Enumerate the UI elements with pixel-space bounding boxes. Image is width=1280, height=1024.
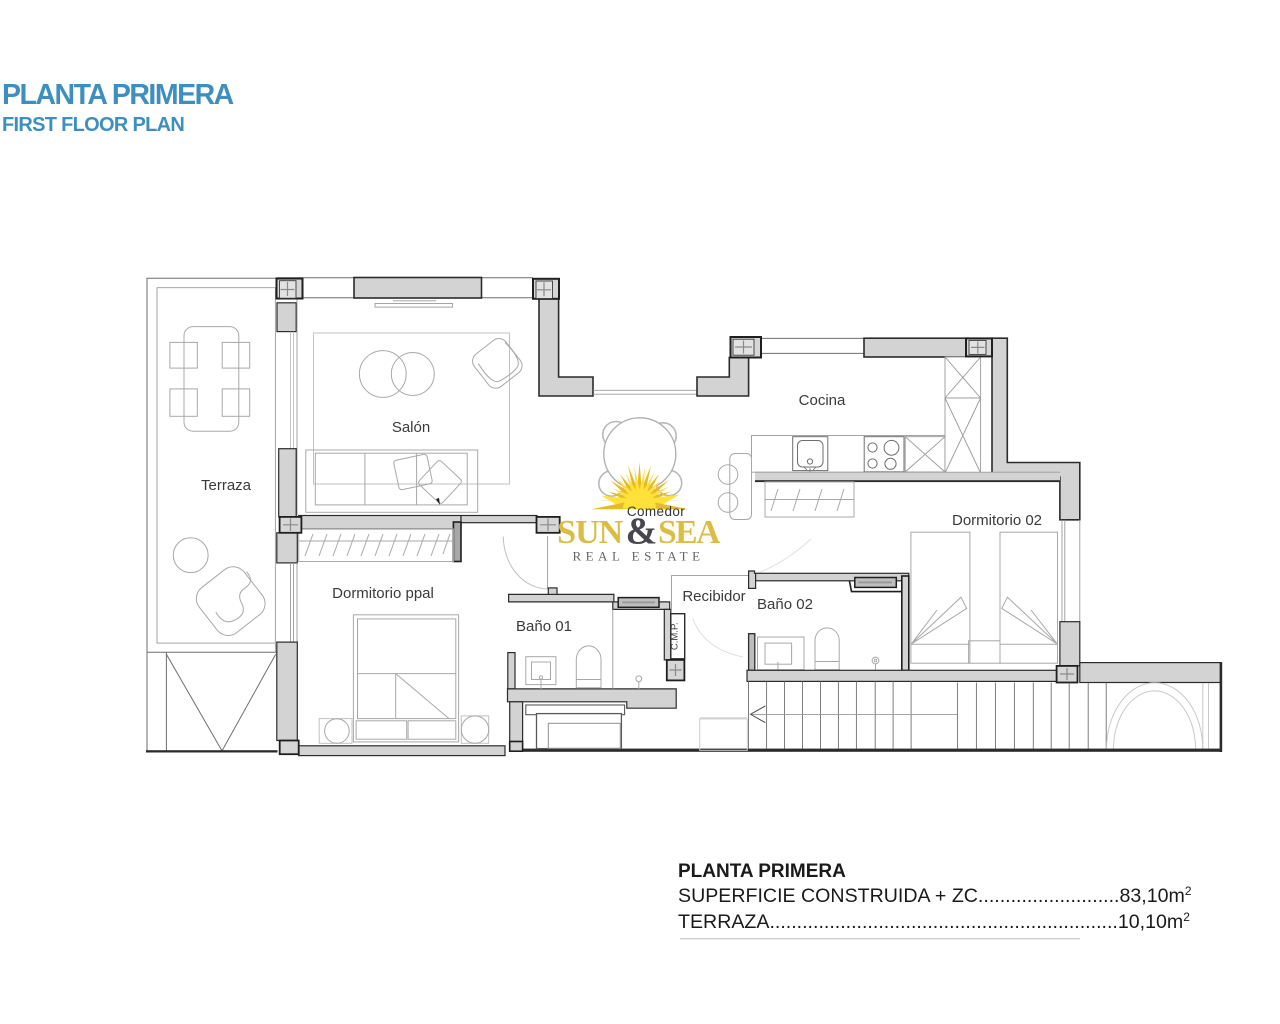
svg-text:Salón: Salón (392, 419, 430, 436)
svg-text:Baño 02: Baño 02 (757, 596, 813, 613)
svg-text:Terraza: Terraza (201, 477, 252, 494)
svg-text:SUN: SUN (557, 514, 623, 551)
svg-text:SEA: SEA (658, 514, 720, 551)
svg-text:FIRST FLOOR PLAN: FIRST FLOOR PLAN (2, 114, 184, 136)
svg-text:Dormitorio 02: Dormitorio 02 (952, 512, 1042, 529)
svg-text:Baño 01: Baño 01 (516, 618, 572, 635)
svg-text:TERRAZA.......................: TERRAZA.................................… (678, 910, 1190, 933)
svg-text:REAL ESTATE: REAL ESTATE (572, 549, 704, 564)
svg-text:PLANTA PRIMERA: PLANTA PRIMERA (678, 861, 846, 882)
svg-text:Dormitorio ppal: Dormitorio ppal (332, 585, 434, 602)
svg-text:&: & (626, 511, 658, 553)
svg-text:PLANTA PRIMERA: PLANTA PRIMERA (2, 79, 234, 111)
svg-text:C.M.P.: C.M.P. (670, 622, 681, 650)
svg-text:Cocina: Cocina (799, 392, 846, 409)
svg-text:Recibidor: Recibidor (682, 588, 745, 605)
svg-text:SUPERFICIE CONSTRUIDA + ZC....: SUPERFICIE CONSTRUIDA + ZC..............… (678, 884, 1192, 907)
